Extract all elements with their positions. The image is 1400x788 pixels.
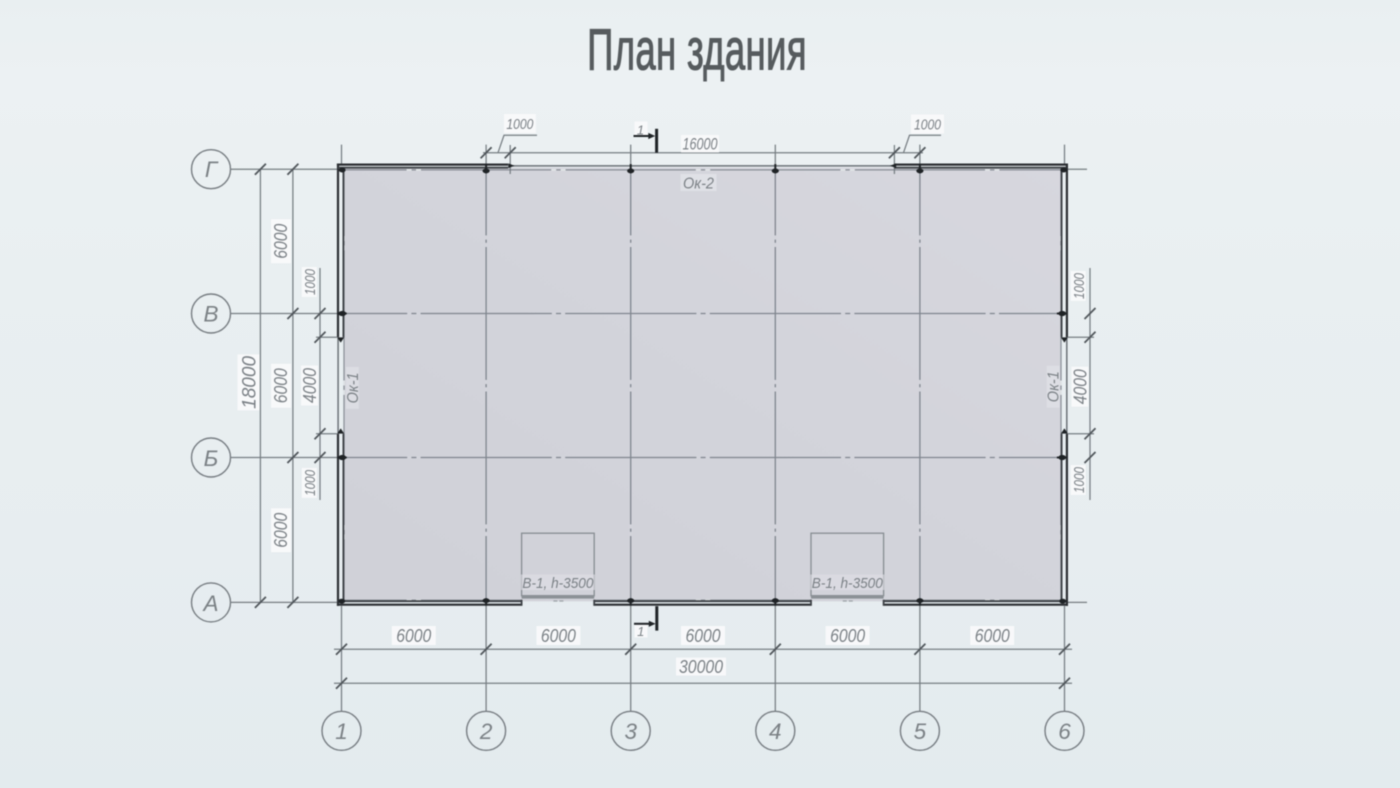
svg-text:18000: 18000	[238, 356, 260, 409]
svg-text:6000: 6000	[541, 625, 577, 646]
svg-text:1000: 1000	[1072, 273, 1088, 299]
svg-text:Ок-1: Ок-1	[345, 372, 362, 403]
svg-text:1: 1	[637, 624, 644, 639]
svg-text:1: 1	[335, 719, 348, 744]
svg-text:1000: 1000	[303, 269, 319, 295]
svg-text:А: А	[201, 591, 218, 616]
svg-text:4: 4	[769, 719, 782, 744]
svg-text:6000: 6000	[271, 224, 291, 259]
svg-text:Ок-1: Ок-1	[1046, 371, 1063, 402]
svg-text:16000: 16000	[683, 136, 719, 154]
svg-text:6000: 6000	[271, 368, 291, 403]
svg-text:Ок-2: Ок-2	[683, 176, 714, 193]
svg-text:6000: 6000	[830, 625, 866, 646]
svg-text:В-1, h-3500: В-1, h-3500	[812, 576, 884, 592]
svg-text:План здания: План здания	[587, 18, 807, 83]
svg-text:Б: Б	[204, 446, 219, 471]
svg-text:6: 6	[1058, 719, 1071, 744]
svg-text:4000: 4000	[1071, 369, 1091, 404]
svg-text:1000: 1000	[1072, 467, 1088, 493]
svg-text:1000: 1000	[506, 117, 533, 133]
svg-text:4000: 4000	[300, 368, 320, 403]
svg-text:6000: 6000	[396, 625, 432, 646]
svg-text:1: 1	[637, 122, 644, 137]
svg-text:30000: 30000	[679, 656, 724, 677]
svg-text:6000: 6000	[686, 625, 722, 646]
svg-text:6000: 6000	[271, 513, 291, 548]
svg-text:В: В	[203, 302, 218, 327]
svg-text:1000: 1000	[914, 117, 941, 133]
svg-text:5: 5	[914, 719, 927, 744]
svg-text:6000: 6000	[975, 625, 1011, 646]
svg-text:2: 2	[479, 719, 493, 744]
svg-text:1000: 1000	[303, 470, 319, 496]
svg-text:Г: Г	[205, 157, 219, 182]
svg-text:В-1, h-3500: В-1, h-3500	[522, 576, 594, 592]
svg-text:3: 3	[624, 719, 637, 744]
